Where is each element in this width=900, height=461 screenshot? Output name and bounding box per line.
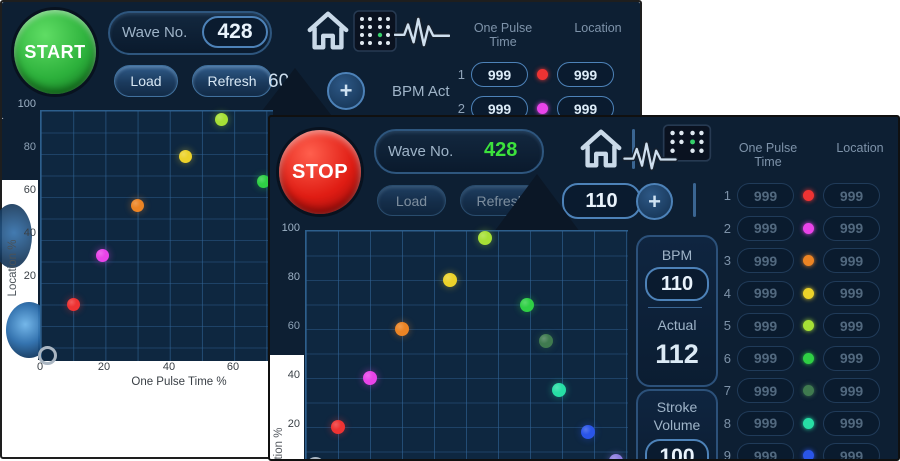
one-pulse-time-value[interactable]: 999 — [737, 411, 794, 436]
row-index: 4 — [716, 286, 731, 301]
y-tick-label: 60 — [8, 184, 36, 198]
y-tick-label: 40 — [274, 369, 300, 383]
table-row: 9999999 — [716, 443, 880, 461]
stroke-volume-label: Stroke — [638, 399, 716, 415]
wave-no-group: Wave No. 428 — [374, 129, 544, 174]
plus-button[interactable]: + — [636, 183, 673, 220]
pulse-color-dot — [803, 418, 814, 429]
row-index: 1 — [716, 188, 731, 203]
location-value[interactable]: 999 — [823, 248, 880, 273]
x-axis-ticks: 0204060 — [16, 361, 276, 375]
location-value[interactable]: 999 — [823, 411, 880, 436]
scatter-points — [306, 231, 628, 461]
x-axis-title: One Pulse Time % — [99, 376, 259, 388]
table-row: 5999999 — [716, 313, 880, 338]
table-row: 2999999 — [716, 216, 880, 241]
keypad-icon[interactable] — [352, 8, 398, 54]
data-point — [215, 113, 228, 126]
waveform-icon[interactable] — [622, 141, 678, 171]
one-pulse-time-value[interactable]: 999 — [737, 216, 794, 241]
one-pulse-time-value[interactable]: 999 — [737, 378, 794, 403]
one-pulse-time-value[interactable]: 999 — [737, 346, 794, 371]
pulse-color-dot — [803, 385, 814, 396]
location-value[interactable]: 999 — [823, 281, 880, 306]
data-point — [395, 322, 409, 336]
wave-no-label: Wave No. — [122, 24, 187, 41]
home-icon[interactable] — [305, 8, 351, 54]
one-pulse-time-header: One Pulse Time — [464, 21, 542, 49]
wave-no-value[interactable]: 428 — [202, 16, 268, 48]
data-point — [131, 199, 144, 212]
one-pulse-time-value[interactable]: 999 — [737, 248, 794, 273]
data-point — [539, 334, 553, 348]
pulse-color-dot — [537, 103, 548, 114]
y-tick-label: 100 — [274, 222, 300, 236]
stroke-volume-value[interactable]: 100 — [645, 439, 709, 461]
bpm-card: BPM 110 Actual 112 — [636, 235, 718, 387]
load-button[interactable]: Load — [377, 185, 446, 216]
stroke-volume-label-2: Volume — [638, 417, 716, 433]
pulse-table: 1999999299999939999994999999599999969999… — [716, 183, 880, 461]
table-row: 4999999 — [716, 281, 880, 306]
y-tick-label: 80 — [8, 141, 36, 155]
pulse-color-dot — [803, 223, 814, 234]
wave-no-group: Wave No. 428 — [108, 11, 272, 55]
refresh-button[interactable]: Refresh — [192, 65, 272, 97]
x-tick-label: 40 — [157, 361, 181, 373]
pulse-color-dot — [803, 190, 814, 201]
data-point — [331, 420, 345, 434]
location-value[interactable]: 999 — [823, 313, 880, 338]
location-value[interactable]: 999 — [823, 443, 880, 461]
data-point — [67, 298, 80, 311]
data-point — [179, 150, 192, 163]
one-pulse-time-value[interactable]: 999 — [737, 313, 794, 338]
location-value[interactable]: 999 — [823, 378, 880, 403]
pulse-color-dot — [803, 353, 814, 364]
one-pulse-time-value[interactable]: 999 — [471, 62, 528, 87]
divider — [648, 307, 702, 308]
x-tick-label: 60 — [221, 361, 245, 373]
location-header: Location — [558, 21, 638, 35]
table-row: 6999999 — [716, 346, 880, 371]
stop-state-window: STOP Wave No. 428 Load Refresh 110 + 10 — [268, 115, 900, 461]
pulse-color-dot — [803, 255, 814, 266]
table-row: 1999999 — [716, 183, 880, 208]
location-value[interactable]: 999 — [557, 62, 614, 87]
row-index: 2 — [450, 101, 465, 116]
screenshot-stage: START Wave No. 428 Load Refresh 60 + BPM… — [0, 0, 900, 461]
data-point — [478, 231, 492, 245]
row-index: 5 — [716, 318, 731, 333]
one-pulse-time-value[interactable]: 999 — [737, 183, 794, 208]
bpm-actual-label: BPM Act — [392, 83, 450, 100]
table-row: 3999999 — [716, 248, 880, 273]
data-point — [363, 371, 377, 385]
y-axis-title: Location % — [273, 420, 285, 461]
row-index: 9 — [716, 448, 731, 461]
row-index: 8 — [716, 416, 731, 431]
wave-no-label: Wave No. — [388, 143, 453, 160]
row-index: 6 — [716, 351, 731, 366]
y-axis-title: Location % — [7, 232, 19, 304]
y-axis-ticks: 10080604020 — [274, 222, 300, 442]
stroke-volume-card: Stroke Volume 100 — [636, 389, 718, 461]
location-value[interactable]: 999 — [823, 216, 880, 241]
pulse-color-dot — [537, 69, 548, 80]
data-point — [443, 273, 457, 287]
location-value[interactable]: 999 — [823, 183, 880, 208]
actual-value: 112 — [638, 339, 716, 370]
data-point — [581, 425, 595, 439]
one-pulse-time-header: One Pulse Time — [728, 141, 808, 169]
start-button[interactable]: START — [14, 10, 96, 94]
data-point — [552, 383, 566, 397]
back-scatter-plot — [40, 110, 273, 361]
table-row: 7999999 — [716, 378, 880, 403]
y-tick-label: 80 — [274, 271, 300, 285]
pulse-color-dot — [803, 320, 814, 331]
data-point — [96, 249, 109, 262]
row-index: 2 — [716, 221, 731, 236]
pulse-color-dot — [803, 288, 814, 299]
bpm-stepper-value[interactable]: 110 — [562, 183, 641, 219]
row-index: 1 — [450, 67, 465, 82]
actual-label: Actual — [638, 317, 716, 333]
stop-button[interactable]: STOP — [279, 130, 361, 214]
bpm-label: BPM — [638, 247, 716, 263]
one-pulse-time-value[interactable]: 999 — [737, 281, 794, 306]
location-value[interactable]: 999 — [823, 346, 880, 371]
front-scatter-plot — [305, 230, 628, 461]
row-index: 7 — [716, 383, 731, 398]
divider — [693, 183, 696, 217]
location-header: Location — [818, 141, 900, 155]
one-pulse-time-value[interactable]: 999 — [737, 443, 794, 461]
x-tick-label: 20 — [92, 361, 116, 373]
y-tick-label: 60 — [274, 320, 300, 334]
row-index: 3 — [716, 253, 731, 268]
data-point — [609, 454, 623, 461]
load-button[interactable]: Load — [114, 65, 178, 97]
home-icon[interactable] — [578, 126, 624, 172]
scatter-points — [41, 111, 273, 361]
pulse-color-dot — [803, 450, 814, 461]
x-tick-label: 0 — [28, 361, 52, 373]
data-point — [520, 298, 534, 312]
plus-button[interactable]: + — [327, 72, 365, 110]
waveform-icon[interactable] — [394, 14, 450, 50]
wave-no-value[interactable]: 428 — [484, 139, 517, 162]
table-row: 8999999 — [716, 411, 880, 436]
bpm-value[interactable]: 110 — [645, 267, 709, 301]
table-row: 1999999 — [450, 62, 614, 87]
y-tick-label: 100 — [8, 98, 36, 112]
